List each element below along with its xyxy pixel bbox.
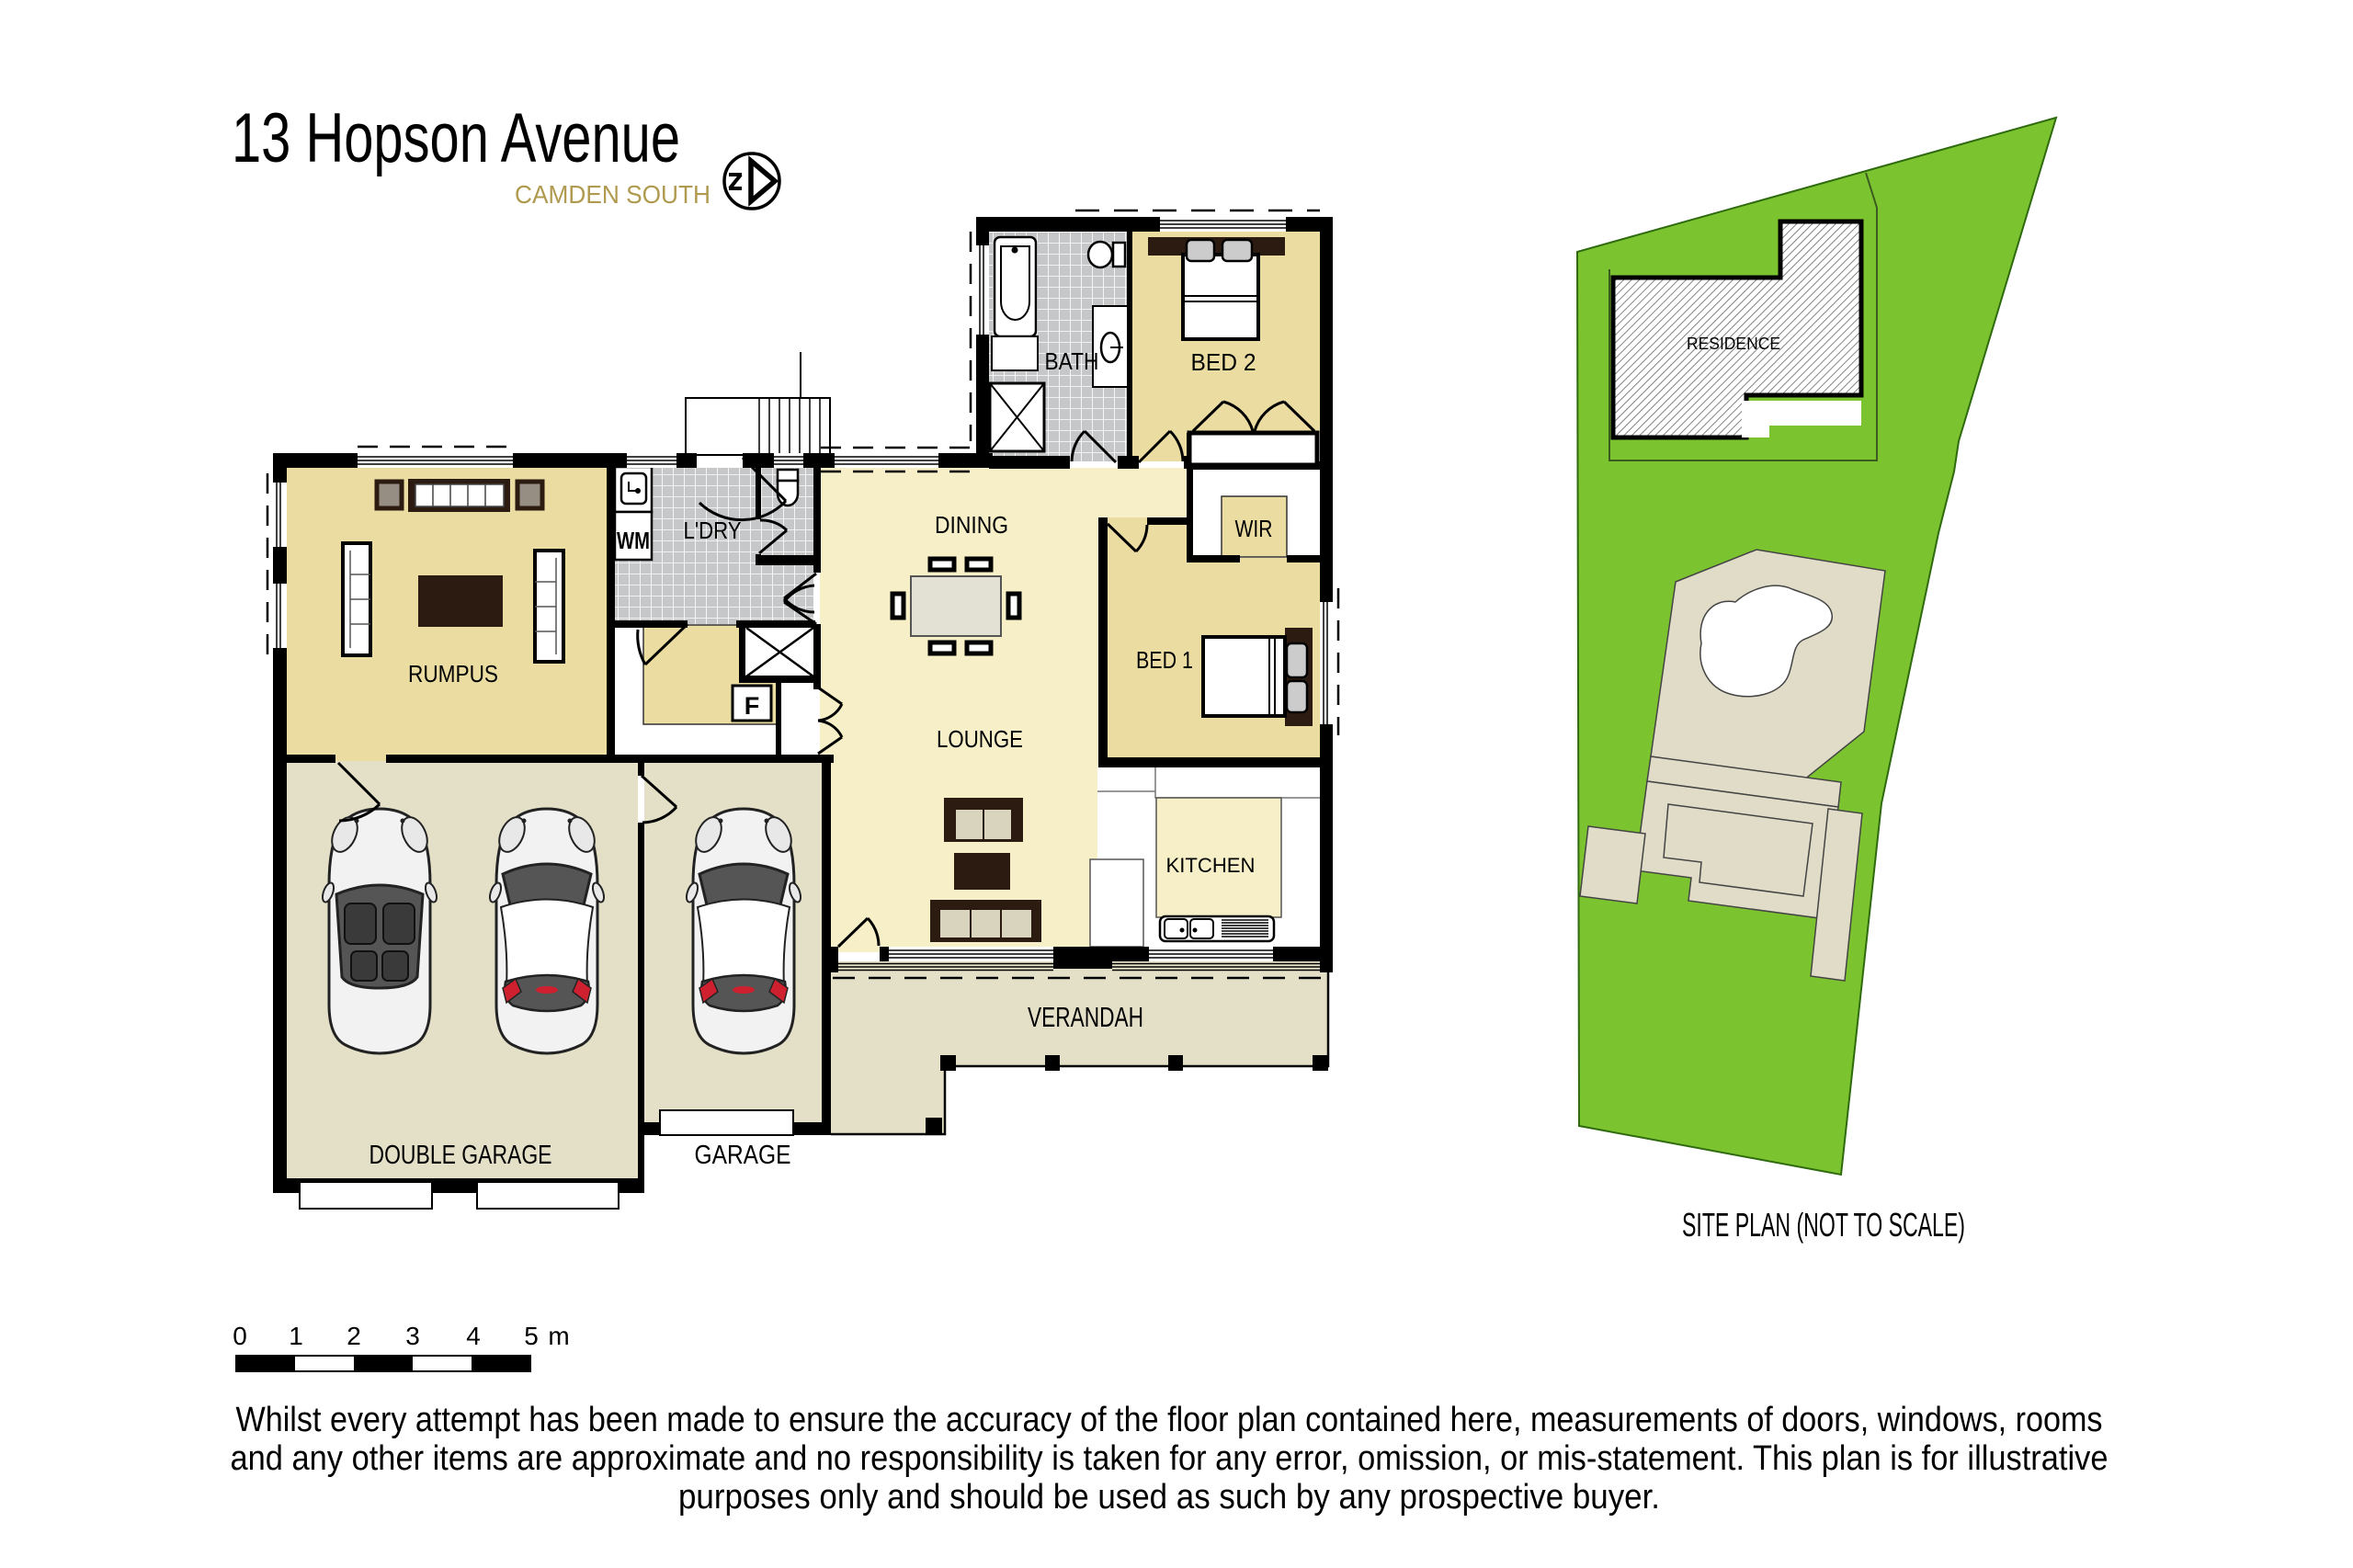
- svg-text:L'DRY: L'DRY: [684, 517, 742, 544]
- svg-text:LOUNGE: LOUNGE: [937, 725, 1023, 753]
- svg-text:purposes only and should be us: purposes only and should be used as such…: [678, 1478, 1660, 1517]
- svg-text:SITE PLAN (NOT TO SCALE): SITE PLAN (NOT TO SCALE): [1682, 1206, 1965, 1244]
- svg-text:GARAGE: GARAGE: [695, 1141, 791, 1170]
- svg-text:WIR: WIR: [1235, 515, 1273, 542]
- svg-text:DINING: DINING: [935, 511, 1008, 539]
- svg-text:RESIDENCE: RESIDENCE: [1687, 335, 1780, 353]
- svg-text:3: 3: [405, 1322, 420, 1350]
- svg-text:WM: WM: [617, 527, 650, 554]
- svg-text:2: 2: [347, 1322, 361, 1350]
- svg-text:and any other items are approx: and any other items are approximate and …: [231, 1439, 2109, 1478]
- svg-text:BED 1: BED 1: [1136, 646, 1193, 674]
- svg-text:CAMDEN SOUTH: CAMDEN SOUTH: [515, 180, 710, 209]
- svg-text:BATH: BATH: [1045, 347, 1099, 375]
- svg-text:1: 1: [289, 1322, 303, 1350]
- svg-text:Whilst every attempt has been: Whilst every attempt has been made to en…: [236, 1401, 2103, 1439]
- svg-text:5: 5: [524, 1322, 539, 1350]
- svg-text:BED 2: BED 2: [1191, 348, 1256, 376]
- svg-text:VERANDAH: VERANDAH: [1028, 1001, 1143, 1033]
- svg-text:13 Hopson Avenue: 13 Hopson Avenue: [232, 99, 680, 177]
- svg-text:m: m: [548, 1322, 569, 1350]
- svg-text:DOUBLE GARAGE: DOUBLE GARAGE: [369, 1141, 552, 1170]
- svg-text:0: 0: [233, 1322, 247, 1350]
- svg-text:4: 4: [466, 1322, 481, 1350]
- svg-text:KITCHEN: KITCHEN: [1166, 854, 1256, 877]
- svg-text:RUMPUS: RUMPUS: [408, 660, 498, 687]
- svg-text:F: F: [745, 692, 760, 720]
